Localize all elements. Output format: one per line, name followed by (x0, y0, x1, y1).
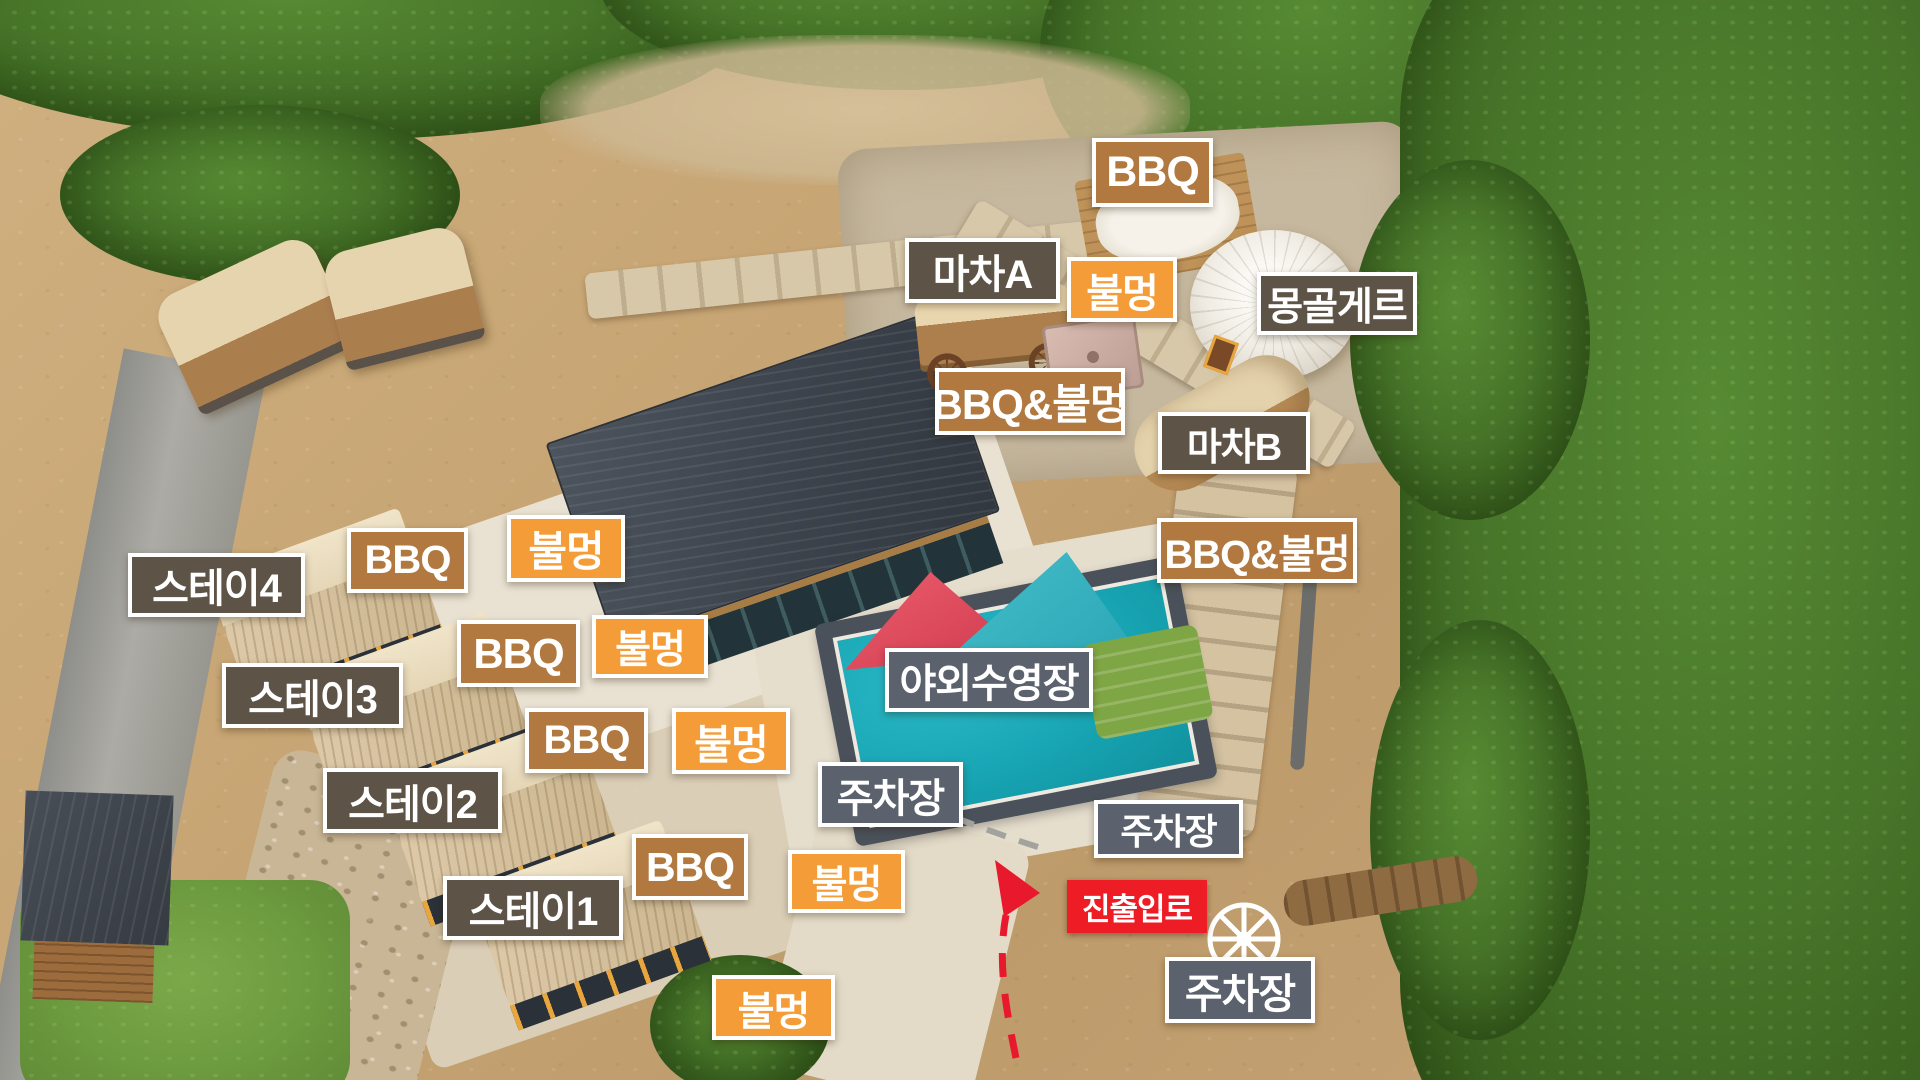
label-bbq-stay1: BBQ (632, 834, 748, 900)
label-wagon-a: 마차A (905, 238, 1060, 303)
label-outdoor-pool: 야외수영장 (885, 648, 1093, 712)
label-bulmeong-stay3: 불멍 (592, 615, 708, 678)
label-bulmeong-stay1: 불멍 (788, 850, 905, 913)
label-bulmeong-stay4: 불멍 (507, 515, 625, 582)
label-stay4: 스테이4 (128, 553, 305, 617)
label-bulmeong-lower: 불멍 (712, 975, 835, 1040)
label-stay1: 스테이1 (443, 876, 623, 940)
entrance-arrow-dashes (1002, 915, 1016, 1058)
annotation-overlay (0, 0, 1920, 1080)
label-parking-lower: 주차장 (1165, 957, 1315, 1023)
label-wagon-b: 마차B (1158, 412, 1310, 474)
label-bbq-stay3: BBQ (457, 620, 580, 687)
label-mongolian-ger: 몽골게르 (1257, 272, 1417, 335)
label-bbq-top: BBQ (1092, 138, 1213, 207)
label-bulmeong-stay2: 불멍 (672, 708, 790, 774)
label-bbq-stay2: BBQ (525, 708, 648, 773)
aerial-site-map: BBQ마차A불멍몽골게르BBQ&불멍마차BBBQ&불멍스테이4BBQ불멍스테이3… (0, 0, 1920, 1080)
label-parking-pool: 주차장 (818, 762, 963, 827)
entrance-arrow-head (995, 860, 1040, 917)
label-bbq-stay4: BBQ (347, 528, 468, 593)
label-bulmeong-top: 불멍 (1067, 257, 1177, 322)
label-parking-mid: 주차장 (1094, 800, 1243, 858)
label-bbq-bulmeong-a: BBQ&불멍 (935, 368, 1125, 435)
label-bbq-bulmeong-b: BBQ&불멍 (1157, 518, 1357, 583)
label-entrance-road: 진출입로 (1067, 880, 1207, 933)
label-stay3: 스테이3 (222, 663, 403, 728)
label-stay2: 스테이2 (323, 768, 502, 833)
